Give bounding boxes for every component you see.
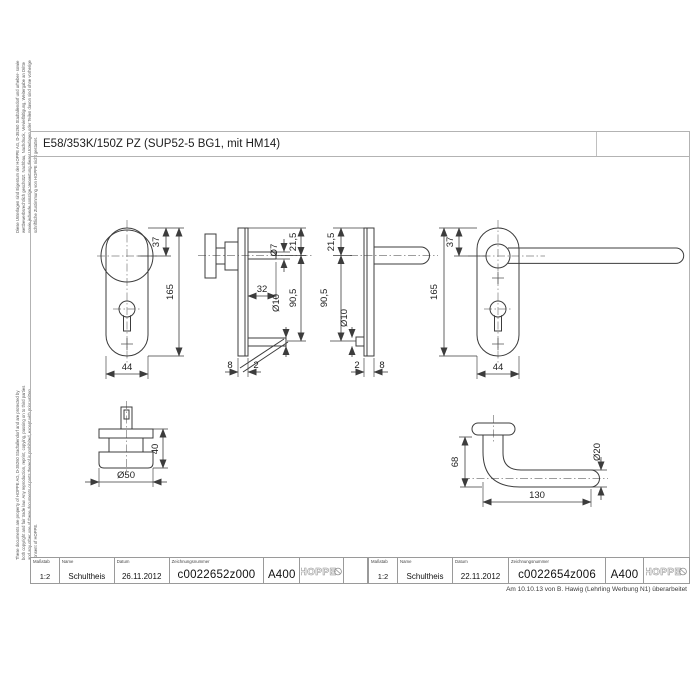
- date-cell: Datum 26.11.2012: [114, 558, 169, 583]
- dim-21-5: 21,5: [326, 233, 337, 252]
- view-lever-side: [356, 228, 430, 356]
- hoppe-logo-text: HOPPE: [646, 567, 682, 578]
- empty-cell: [343, 558, 367, 583]
- dim-68: 68: [450, 457, 461, 468]
- dim-44: 44: [122, 362, 133, 373]
- hoppe-logo-cell: HOPPE: [299, 558, 343, 583]
- dim-130: 130: [529, 490, 545, 501]
- scale-cell: Maßstab 1:2: [369, 558, 397, 583]
- name-value: Schultheis: [60, 572, 114, 581]
- dim-165: 165: [165, 284, 176, 300]
- dim-21-5: 21,5: [288, 233, 299, 252]
- dim-o10: Ø10: [339, 309, 350, 327]
- scale-value: 1:2: [31, 572, 59, 581]
- name-value: Schultheis: [398, 572, 452, 581]
- name-label: Name: [400, 559, 411, 564]
- date-value: 22.11.2012: [453, 572, 508, 581]
- dim-8: 8: [379, 360, 384, 371]
- drawing-number-cell: Zeichnungsnummer c0022652z000: [169, 558, 264, 583]
- hoppe-logo: HOPPE: [646, 564, 688, 579]
- dim-o50: Ø50: [117, 470, 135, 481]
- scale-value: 1:2: [369, 572, 397, 581]
- scale-label: Maßstab: [33, 559, 50, 564]
- drawing-number-label: Zeichnungsnummer: [172, 559, 210, 564]
- view-lever-detail: [472, 423, 600, 487]
- title-block-left: Maßstab 1:2 Name Schultheis Datum 26.11.…: [30, 557, 368, 584]
- dim-o10: Ø10: [271, 294, 282, 312]
- date-value: 26.11.2012: [115, 572, 169, 581]
- scale-label: Maßstab: [371, 559, 388, 564]
- format-cell: A400: [605, 558, 643, 583]
- dim-8: 8: [227, 360, 232, 371]
- dim-37: 37: [151, 237, 162, 248]
- lever-handle: [508, 248, 684, 263]
- hoppe-logo-cell: HOPPE: [643, 558, 689, 583]
- dim-o7: Ø7: [269, 244, 280, 257]
- dim-2: 2: [354, 360, 359, 371]
- dimension-lines: [85, 228, 601, 502]
- technical-drawing-canvas: 37 165 44 Ø7 21,5 32 Ø10 90,5 8 2 21,5 9…: [0, 0, 700, 700]
- dim-44: 44: [493, 362, 504, 373]
- drawing-number-label: Zeichnungsnummer: [511, 559, 549, 564]
- name-cell: Name Schultheis: [397, 558, 452, 583]
- dim-37: 37: [445, 237, 456, 248]
- scale-cell: Maßstab 1:2: [31, 558, 59, 583]
- title-block-right: Maßstab 1:2 Name Schultheis Datum 22.11.…: [368, 557, 690, 584]
- view-knob-detail: [99, 407, 153, 468]
- hoppe-logo: HOPPE: [301, 564, 343, 579]
- dim-o20: Ø20: [592, 443, 603, 461]
- format-cell: A400: [263, 558, 299, 583]
- dim-90-5: 90,5: [319, 289, 330, 308]
- drawing-number-value: c0022652z000: [170, 569, 264, 581]
- drawing-number-cell: Zeichnungsnummer c0022654z006: [508, 558, 605, 583]
- hoppe-logo-text: HOPPE: [301, 567, 337, 578]
- dim-90-5: 90,5: [288, 289, 299, 308]
- drawing-sheet: Diese Unterlagen sind Eigentum der HOPPE…: [0, 0, 700, 700]
- date-cell: Datum 22.11.2012: [452, 558, 508, 583]
- dim-2: 2: [253, 360, 258, 371]
- dimension-labels: 37 165 44 Ø7 21,5 32 Ø10 90,5 8 2 21,5 9…: [117, 233, 603, 501]
- revision-note: Am 10.10.13 von B. Hawig (Lehrling Werbu…: [0, 586, 687, 593]
- extension-lines: [99, 228, 607, 507]
- format-value: A400: [606, 569, 643, 581]
- name-label: Name: [62, 559, 73, 564]
- centerlines: [97, 220, 608, 479]
- date-label: Datum: [117, 559, 130, 564]
- dim-40: 40: [150, 444, 161, 455]
- date-label: Datum: [455, 559, 468, 564]
- format-value: A400: [264, 569, 299, 581]
- dim-165: 165: [429, 284, 440, 300]
- drawing-number-value: c0022654z006: [509, 569, 605, 581]
- view-lever-plate-front: [477, 228, 684, 356]
- name-cell: Name Schultheis: [59, 558, 114, 583]
- dim-32: 32: [257, 284, 268, 295]
